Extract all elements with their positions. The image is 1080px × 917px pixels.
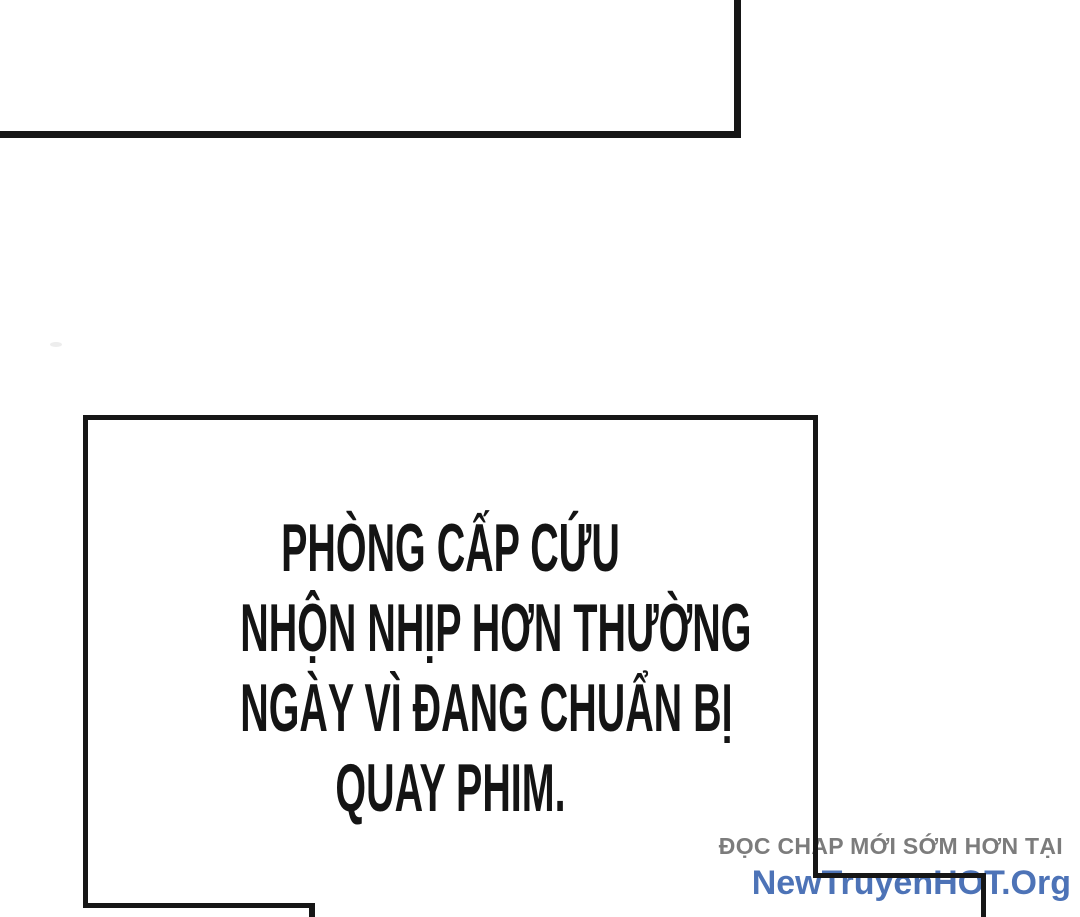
- caption-line: NGÀY VÌ ĐANG CHUẨN BỊ: [240, 668, 661, 748]
- caption-panel-border-bottom: [83, 903, 315, 908]
- print-speck: [50, 342, 62, 347]
- caption-panel-border-top: [83, 415, 818, 420]
- next-panel-edge-left: [309, 903, 315, 917]
- caption-line: PHÒNG CẤP CỨU: [240, 508, 661, 588]
- caption-box: PHÒNG CẤP CỨU NHỘN NHỊP HƠN THƯỜNG NGÀY …: [88, 508, 813, 828]
- caption-line: NHỘN NHỊP HƠN THƯỜNG: [240, 588, 661, 668]
- watermark-site-url: NewTruyenHOT.Org: [752, 866, 1071, 900]
- caption-panel-border-step: [813, 873, 986, 878]
- caption-panel-border-right: [813, 415, 818, 878]
- panel-top-border: [0, 0, 741, 138]
- next-panel-edge-right: [981, 873, 986, 917]
- watermark-tagline: ĐỌC CHAP MỚI SỚM HƠN TẠI: [719, 835, 1063, 858]
- caption-line: QUAY PHIM.: [240, 748, 661, 828]
- comic-page: ĐỌC CHAP MỚI SỚM HƠN TẠI NewTruyenHOT.Or…: [0, 0, 1080, 917]
